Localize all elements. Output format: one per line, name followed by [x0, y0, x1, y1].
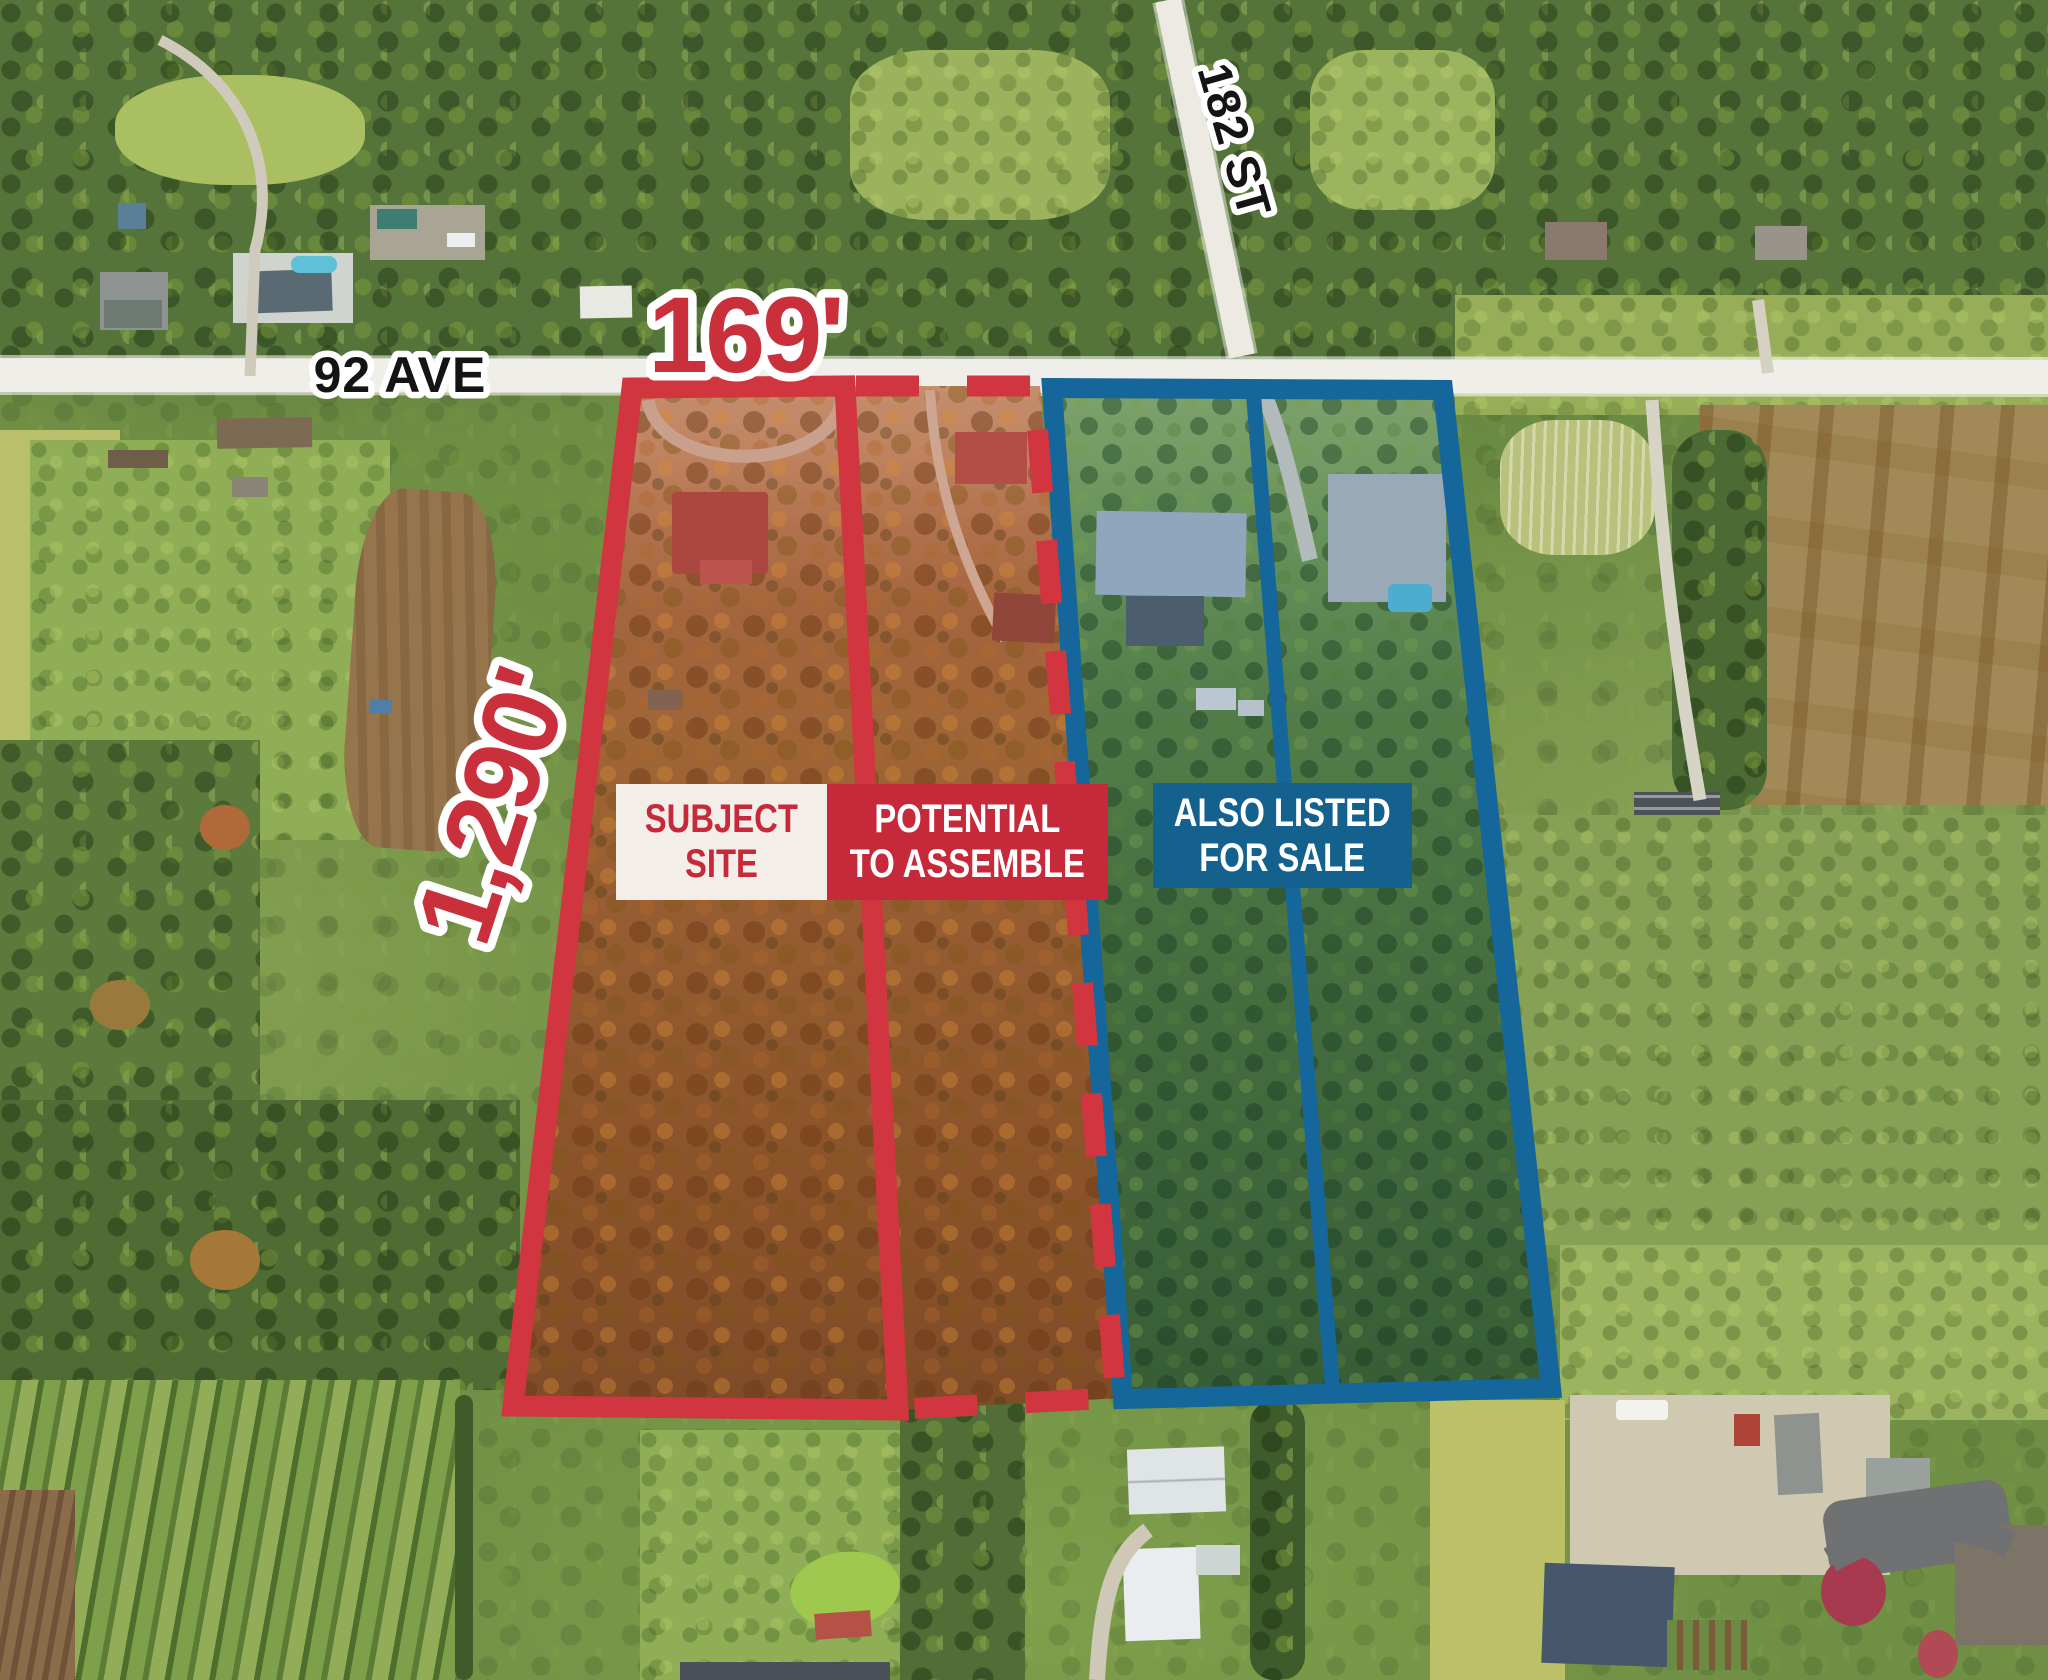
driveway-top-left-loop [160, 40, 262, 376]
subject-site-label-line2: SITE [685, 842, 758, 887]
street-label-92-ave: 92 AVE [314, 347, 487, 403]
driveway-right-field [1652, 400, 1700, 800]
subject-site-label-box: SUBJECT SITE [616, 784, 827, 900]
potential-assemble-label-line1: POTENTIAL [875, 797, 1061, 842]
dimension-label-frontage: 169' [648, 274, 842, 395]
also-listed-label-line1: ALSO LISTED [1174, 791, 1391, 836]
potential-assemble-label-box: POTENTIAL TO ASSEMBLE [827, 784, 1108, 900]
aerial-map-canvas: 92 AVE 182 ST 169' 1,290' SUBJECT SITE P… [0, 0, 2048, 1680]
blue-tint-overlay [1052, 388, 1551, 1399]
asphalt-lane-bottom-right [1830, 1528, 2010, 1560]
gravel-lane-bottom-centre [1097, 1530, 1148, 1680]
subject-site-label-line1: SUBJECT [645, 797, 798, 842]
also-listed-label-box: ALSO LISTED FOR SALE [1153, 783, 1412, 888]
potential-assemble-label-line2: TO ASSEMBLE [850, 842, 1085, 887]
also-listed-label-line2: FOR SALE [1200, 836, 1366, 881]
